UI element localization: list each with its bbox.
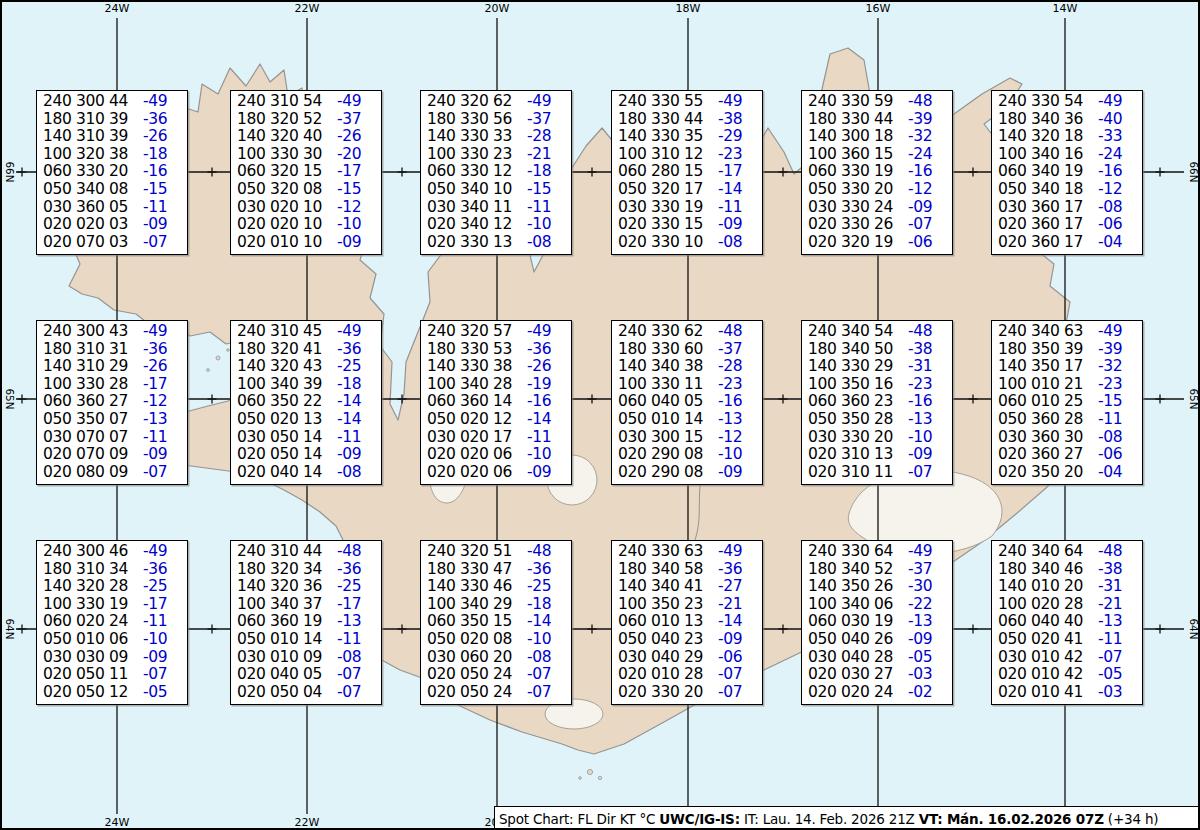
kt-value: 11 [684,376,718,394]
dir-value: 020 [76,613,109,631]
temp-value: -05 [908,649,938,667]
fl-value: 100 [618,376,651,394]
temp-value: -08 [527,234,557,252]
temp-value: -21 [718,596,748,614]
temp-value: -32 [908,128,938,146]
dir-value: 040 [270,666,303,684]
temp-value: -07 [143,464,173,482]
fl-value: 240 [237,543,270,561]
dir-value: 340 [1031,163,1064,181]
lon-label-top-24W: 24W [105,3,130,15]
temp-value: -49 [908,543,938,561]
temp-value: -26 [143,128,173,146]
temp-value: -07 [143,234,173,252]
dir-value: 010 [1031,684,1064,702]
dir-value: 330 [651,684,684,702]
footer-bold-segment: UWC/IG-IS: [659,811,740,827]
fl-value: 020 [808,234,841,252]
dir-value: 310 [841,464,874,482]
fl-value: 100 [808,596,841,614]
dir-value: 320 [270,561,303,579]
dir-value: 330 [76,596,109,614]
fl-value: 020 [618,216,651,234]
kt-value: 05 [303,666,337,684]
kt-value: 06 [109,631,143,649]
fl-value: 180 [237,561,270,579]
temp-value: -23 [908,376,938,394]
kt-value: 35 [684,128,718,146]
kt-value: 44 [684,111,718,129]
fl-value: 030 [43,649,76,667]
fl-value: 050 [808,631,841,649]
dir-value: 360 [1031,411,1064,429]
temp-value: -09 [908,631,938,649]
fl-value: 240 [43,543,76,561]
dir-value: 350 [1031,464,1064,482]
dir-value: 070 [76,429,109,447]
kt-value: 64 [874,543,908,561]
fl-value: 100 [808,146,841,164]
kt-value: 20 [874,181,908,199]
fl-value: 060 [618,393,651,411]
dir-value: 340 [270,376,303,394]
dir-value: 350 [270,393,303,411]
kt-value: 45 [303,323,337,341]
temp-value: -26 [143,358,173,376]
dir-value: 350 [651,596,684,614]
kt-value: 39 [109,128,143,146]
kt-value: 29 [684,649,718,667]
kt-value: 30 [303,146,337,164]
dir-value: 300 [76,543,109,561]
dir-value: 040 [270,464,303,482]
dir-value: 040 [841,631,874,649]
fl-value: 050 [237,181,270,199]
temp-value: -09 [718,216,748,234]
fl-value: 180 [808,341,841,359]
fl-value: 180 [998,111,1031,129]
temp-value: -20 [337,146,367,164]
kt-value: 18 [874,128,908,146]
temp-value: -36 [143,561,173,579]
kt-value: 27 [874,666,908,684]
dir-value: 310 [76,128,109,146]
temp-value: -38 [908,341,938,359]
fl-value: 020 [808,446,841,464]
temp-value: -36 [143,341,173,359]
kt-value: 10 [493,181,527,199]
dir-value: 020 [1031,631,1064,649]
station-box-r3c6: 24034064-4818034046-3814001020-311000202… [991,540,1143,705]
kt-value: 60 [684,341,718,359]
fl-value: 060 [808,613,841,631]
dir-value: 340 [1031,146,1064,164]
spot-chart-canvas: 24W22W20W18W16W14W24W22W20W66N66N65N65N6… [0,0,1200,830]
kt-value: 17 [1064,234,1098,252]
fl-value: 020 [237,464,270,482]
kt-value: 34 [109,561,143,579]
fl-value: 100 [43,376,76,394]
dir-value: 010 [270,649,303,667]
temp-value: -38 [1098,561,1128,579]
kt-value: 07 [109,411,143,429]
kt-value: 41 [1064,631,1098,649]
kt-value: 19 [874,613,908,631]
temp-value: -08 [1098,429,1128,447]
dir-value: 360 [76,393,109,411]
temp-value: -49 [337,93,367,111]
kt-value: 19 [684,199,718,217]
dir-value: 020 [460,446,493,464]
dir-value: 310 [270,323,303,341]
temp-value: -37 [718,341,748,359]
station-box-r2c2: 24031045-4918032041-3614032043-251003403… [230,320,382,485]
temp-value: -11 [337,429,367,447]
fl-value: 030 [618,199,651,217]
temp-value: -10 [908,429,938,447]
dir-value: 340 [1031,561,1064,579]
temp-value: -12 [1098,181,1128,199]
kt-value: 12 [493,411,527,429]
kt-value: 19 [1064,163,1098,181]
dir-value: 320 [76,578,109,596]
dir-value: 010 [651,666,684,684]
dir-value: 050 [76,666,109,684]
kt-value: 14 [303,631,337,649]
dir-value: 330 [841,216,874,234]
dir-value: 330 [841,543,874,561]
dir-value: 320 [1031,128,1064,146]
temp-value: -13 [143,411,173,429]
fl-value: 140 [43,358,76,376]
temp-value: -13 [718,411,748,429]
fl-value: 060 [808,393,841,411]
fl-value: 020 [808,464,841,482]
fl-value: 050 [43,631,76,649]
lat-label-right-64N: 64N [1188,618,1199,639]
kt-value: 41 [303,341,337,359]
dir-value: 320 [460,93,493,111]
kt-value: 23 [874,393,908,411]
kt-value: 30 [1064,429,1098,447]
kt-value: 09 [109,649,143,667]
dir-value: 310 [651,146,684,164]
temp-value: -04 [1098,464,1128,482]
dir-value: 040 [651,649,684,667]
dir-value: 330 [651,93,684,111]
fl-value: 020 [43,684,76,702]
dir-value: 330 [841,429,874,447]
dir-value: 330 [460,561,493,579]
kt-value: 19 [874,234,908,252]
dir-value: 360 [1031,234,1064,252]
fl-value: 240 [43,323,76,341]
fl-value: 240 [998,323,1031,341]
kt-value: 12 [684,146,718,164]
kt-value: 05 [109,199,143,217]
dir-value: 320 [270,128,303,146]
kt-value: 40 [303,128,337,146]
kt-value: 52 [303,111,337,129]
kt-value: 38 [684,358,718,376]
kt-value: 19 [874,163,908,181]
temp-value: -29 [718,128,748,146]
fl-value: 240 [998,543,1031,561]
dir-value: 340 [1031,181,1064,199]
fl-value: 030 [808,429,841,447]
temp-value: -39 [1098,341,1128,359]
dir-value: 050 [76,684,109,702]
dir-value: 330 [651,543,684,561]
lon-label-top-14W: 14W [1053,3,1078,15]
dir-value: 360 [1031,429,1064,447]
temp-value: -09 [908,199,938,217]
kt-value: 63 [684,543,718,561]
fl-value: 140 [237,128,270,146]
station-box-r2c6: 24034063-4918035039-3914035017-321000102… [991,320,1143,485]
fl-value: 050 [237,631,270,649]
temp-value: -09 [143,216,173,234]
kt-value: 06 [493,464,527,482]
temp-value: -28 [718,358,748,376]
kt-value: 03 [109,216,143,234]
temp-value: -23 [718,376,748,394]
kt-value: 44 [109,93,143,111]
temp-value: -25 [527,578,557,596]
fl-value: 020 [808,216,841,234]
kt-value: 09 [303,649,337,667]
kt-value: 17 [1064,216,1098,234]
temp-value: -10 [718,446,748,464]
kt-value: 54 [1064,93,1098,111]
dir-value: 340 [841,561,874,579]
fl-value: 100 [237,146,270,164]
kt-value: 20 [684,684,718,702]
kt-value: 44 [874,111,908,129]
dir-value: 340 [76,181,109,199]
temp-value: -07 [527,666,557,684]
dir-value: 020 [841,684,874,702]
kt-value: 55 [684,93,718,111]
temp-value: -12 [718,429,748,447]
fl-value: 020 [808,684,841,702]
temp-value: -15 [527,181,557,199]
fl-value: 050 [998,411,1031,429]
temp-value: -49 [337,323,367,341]
fl-value: 100 [427,376,460,394]
fl-value: 140 [43,128,76,146]
temp-value: -10 [527,631,557,649]
dir-value: 330 [460,358,493,376]
station-box-r1c4: 24033055-4918033044-3814033035-291003101… [611,90,763,255]
dir-value: 330 [460,341,493,359]
station-box-r1c6: 24033054-4918034036-4014032018-331003401… [991,90,1143,255]
kt-value: 28 [1064,596,1098,614]
temp-value: -49 [143,93,173,111]
dir-value: 330 [651,376,684,394]
kt-value: 09 [109,464,143,482]
temp-value: -08 [1098,199,1128,217]
temp-value: -49 [718,543,748,561]
kt-value: 50 [874,341,908,359]
kt-value: 19 [109,596,143,614]
dir-value: 350 [1031,341,1064,359]
dir-value: 300 [76,93,109,111]
station-box-r2c1: 24030043-4918031031-3614031029-261003302… [36,320,188,485]
dir-value: 330 [460,234,493,252]
dir-value: 010 [651,411,684,429]
station-box-r3c5: 24033064-4918034052-3714035026-301003400… [801,540,953,705]
kt-value: 04 [303,684,337,702]
fl-value: 060 [427,163,460,181]
temp-value: -28 [527,128,557,146]
temp-value: -07 [337,666,367,684]
kt-value: 17 [1064,199,1098,217]
fl-value: 030 [998,199,1031,217]
kt-value: 24 [109,613,143,631]
temp-value: -10 [527,446,557,464]
dir-value: 010 [1031,393,1064,411]
temp-value: -38 [718,111,748,129]
dir-value: 280 [651,163,684,181]
dir-value: 330 [841,163,874,181]
dir-value: 290 [651,446,684,464]
fl-value: 240 [998,93,1031,111]
temp-value: -36 [337,561,367,579]
kt-value: 19 [303,613,337,631]
kt-value: 33 [493,128,527,146]
temp-value: -49 [718,93,748,111]
lat-label-left-66N: 66N [4,161,15,182]
temp-value: -48 [337,543,367,561]
dir-value: 330 [651,323,684,341]
temp-value: -27 [718,578,748,596]
fl-value: 140 [808,128,841,146]
landmass [69,48,1114,780]
fl-value: 060 [618,613,651,631]
kt-value: 15 [684,163,718,181]
fl-value: 140 [618,358,651,376]
fl-value: 180 [43,341,76,359]
temp-value: -33 [1098,128,1128,146]
station-box-r3c3: 24032051-4818033047-3614033046-251003402… [420,540,572,705]
fl-value: 240 [43,93,76,111]
fl-value: 240 [808,323,841,341]
temp-value: -23 [1098,376,1128,394]
kt-value: 10 [303,234,337,252]
dir-value: 340 [1031,543,1064,561]
dir-value: 020 [460,631,493,649]
fl-value: 020 [237,684,270,702]
fl-value: 100 [998,596,1031,614]
dir-value: 060 [460,649,493,667]
kt-value: 24 [874,684,908,702]
dir-value: 360 [1031,199,1064,217]
temp-value: -16 [908,393,938,411]
station-box-r2c5: 24034054-4818034050-3814033029-311003501… [801,320,953,485]
dir-value: 020 [460,464,493,482]
temp-value: -48 [908,93,938,111]
dir-value: 300 [841,128,874,146]
fl-value: 140 [618,128,651,146]
fl-value: 140 [808,358,841,376]
temp-value: -25 [143,578,173,596]
dir-value: 320 [270,358,303,376]
temp-value: -37 [527,111,557,129]
dir-value: 010 [270,631,303,649]
kt-value: 28 [874,411,908,429]
kt-value: 11 [109,666,143,684]
fl-value: 020 [427,464,460,482]
temp-value: -36 [337,341,367,359]
temp-value: -11 [143,199,173,217]
temp-value: -22 [908,596,938,614]
fl-value: 020 [618,446,651,464]
station-box-r1c3: 24032062-4918033056-3714033033-281003302… [420,90,572,255]
kt-value: 36 [303,578,337,596]
kt-value: 37 [303,596,337,614]
dir-value: 010 [651,613,684,631]
temp-value: -18 [527,163,557,181]
fl-value: 050 [618,631,651,649]
fl-value: 180 [427,341,460,359]
station-box-r3c4: 24033063-4918034058-3614034041-271003502… [611,540,763,705]
dir-value: 360 [270,613,303,631]
dir-value: 010 [1031,649,1064,667]
dir-value: 330 [841,93,874,111]
kt-value: 16 [874,376,908,394]
kt-value: 13 [493,234,527,252]
kt-value: 11 [874,464,908,482]
fl-value: 100 [43,596,76,614]
fl-value: 020 [427,446,460,464]
fl-value: 020 [998,234,1031,252]
dir-value: 340 [460,199,493,217]
kt-value: 43 [109,323,143,341]
dir-value: 320 [76,146,109,164]
dir-value: 040 [841,649,874,667]
temp-value: -08 [337,649,367,667]
temp-value: -26 [527,358,557,376]
dir-value: 320 [841,234,874,252]
temp-value: -16 [718,393,748,411]
temp-value: -08 [337,464,367,482]
kt-value: 27 [109,393,143,411]
kt-value: 10 [303,199,337,217]
fl-value: 030 [618,649,651,667]
temp-value: -07 [143,666,173,684]
temp-value: -08 [527,649,557,667]
fl-value: 030 [237,199,270,217]
temp-value: -04 [1098,234,1128,252]
fl-value: 020 [998,666,1031,684]
fl-value: 060 [618,163,651,181]
dir-value: 330 [460,146,493,164]
kt-value: 46 [109,543,143,561]
dir-value: 340 [651,561,684,579]
kt-value: 20 [1064,464,1098,482]
temp-value: -17 [337,596,367,614]
fl-value: 100 [237,596,270,614]
kt-value: 20 [109,163,143,181]
fl-value: 180 [43,111,76,129]
temp-value: -14 [527,411,557,429]
temp-value: -05 [1098,666,1128,684]
temp-value: -32 [1098,358,1128,376]
kt-value: 15 [684,216,718,234]
dir-value: 310 [76,358,109,376]
kt-value: 15 [493,613,527,631]
